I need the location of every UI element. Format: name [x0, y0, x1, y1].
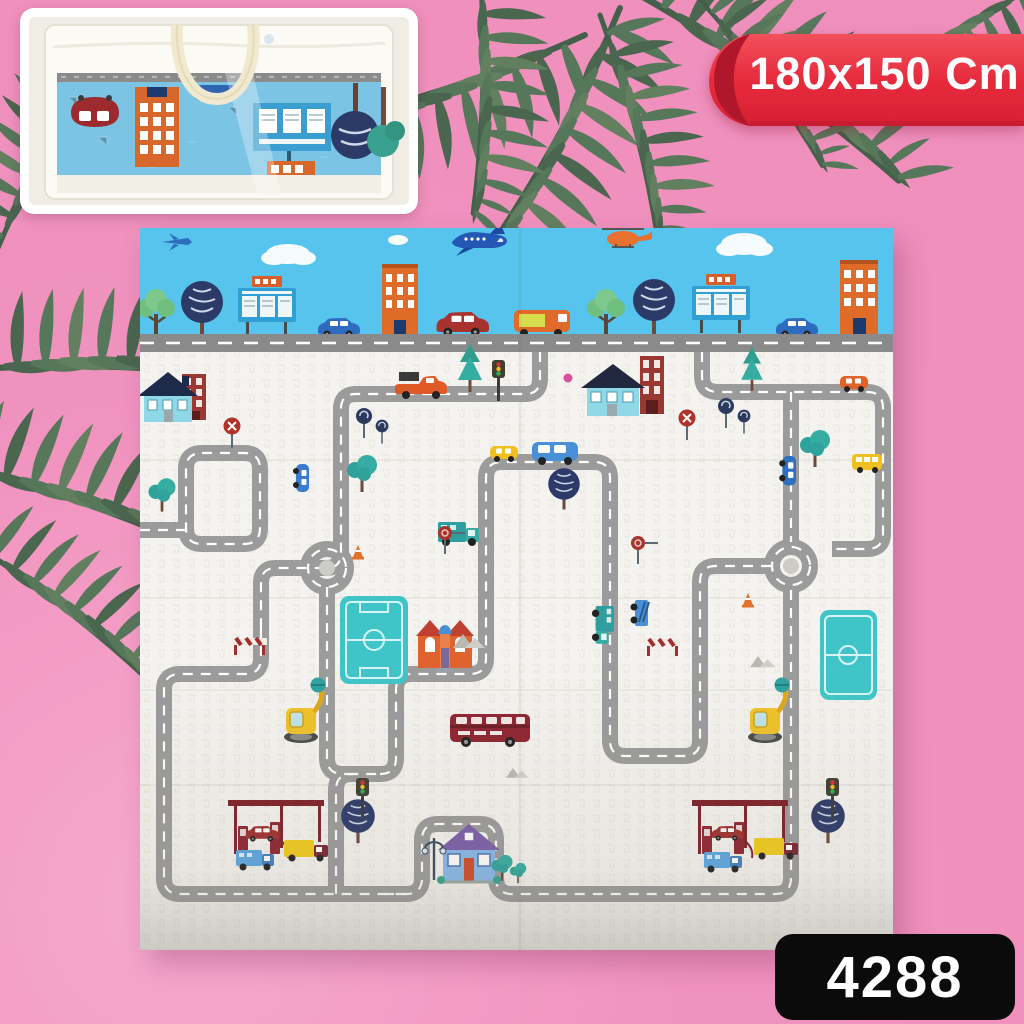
orange-building-icon [840, 260, 878, 334]
brick-building-icon [640, 356, 664, 414]
size-label: 180x150 Cm [745, 48, 1024, 100]
roundab out-center [319, 560, 335, 576]
bag-snap-button [264, 34, 274, 44]
mat-sky-band [140, 228, 893, 352]
pink-ball-icon [564, 374, 573, 383]
packaged-mat-photo [20, 8, 418, 214]
roundabout-center [783, 558, 799, 574]
product-code: 4288 [826, 944, 963, 1011]
mat-shading [140, 658, 893, 950]
folded-mat-bottom [57, 175, 381, 193]
product-photo: 180x150 Cm 4288 [0, 0, 1024, 1024]
orange-building-upside-down-icon [135, 87, 179, 167]
product-code-badge: 4288 [775, 934, 1015, 1020]
orange-building-icon [382, 264, 418, 334]
play-mat [140, 228, 893, 950]
